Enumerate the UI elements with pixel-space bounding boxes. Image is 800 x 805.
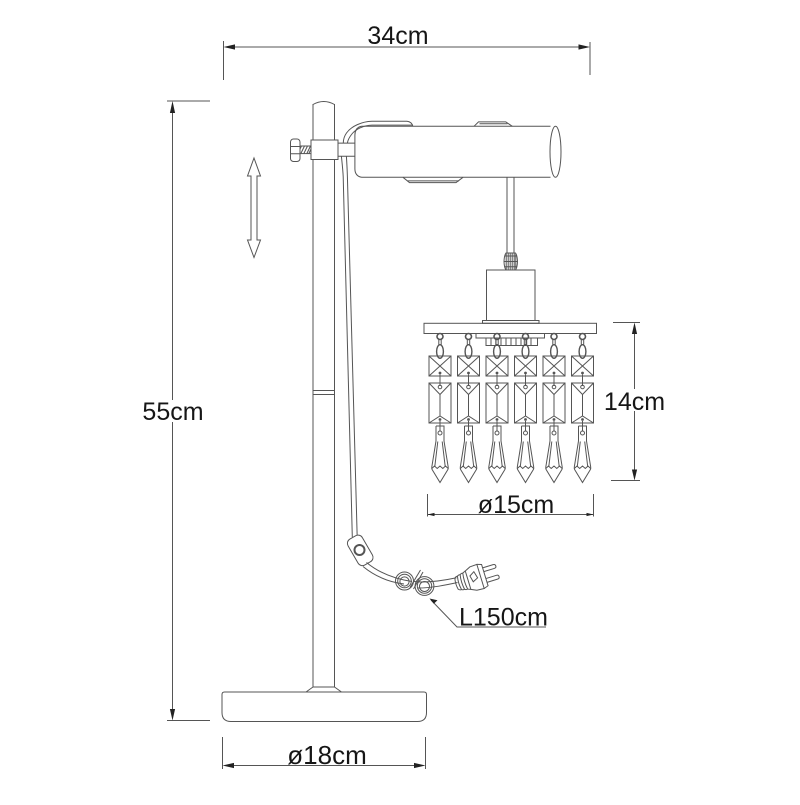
svg-text:34cm: 34cm: [367, 22, 428, 50]
svg-text:14cm: 14cm: [604, 388, 665, 416]
svg-text:L150cm: L150cm: [459, 604, 548, 632]
svg-text:55cm: 55cm: [142, 398, 203, 426]
svg-text:ø18cm: ø18cm: [287, 740, 366, 770]
svg-text:ø15cm: ø15cm: [478, 491, 554, 519]
